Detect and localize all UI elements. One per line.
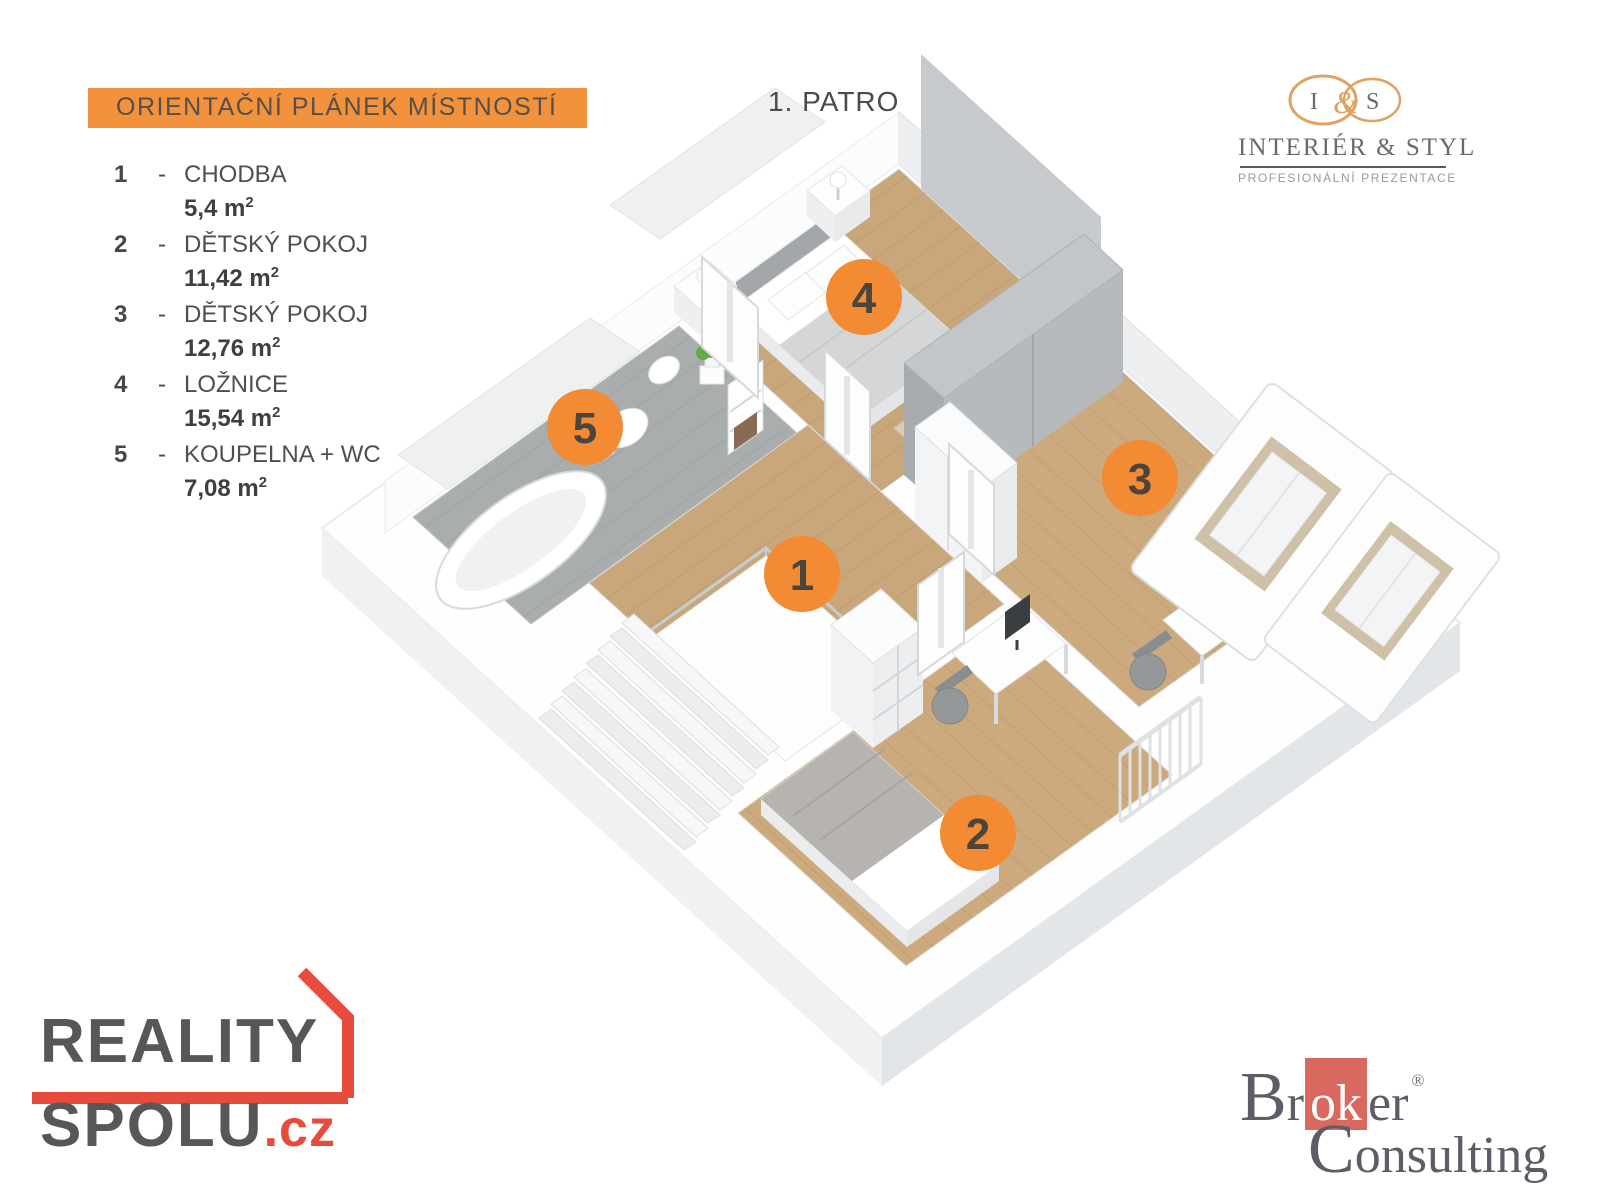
area-value: 11,42 m <box>184 265 271 292</box>
legend-row: 5-KOUPELNA + WC 7,08 m2 <box>88 440 648 503</box>
registered-mark: ® <box>1411 1071 1424 1090</box>
broker-br: Br <box>1240 1058 1304 1138</box>
room-area: 7,08 m2 <box>158 469 648 503</box>
room-number: 3 <box>114 300 158 329</box>
room-name: DĚTSKÝ POKOJ <box>184 300 648 329</box>
separator: - <box>158 230 184 259</box>
room-number: 5 <box>114 440 158 469</box>
area-sup: 2 <box>259 475 267 491</box>
room-name: KOUPELNA + WC <box>184 440 648 469</box>
infinity-monogram-icon: I & S <box>1238 66 1448 132</box>
reality-spolu-logo: REALITY SPOLU.cz <box>30 958 450 1193</box>
room-number: 2 <box>114 230 158 259</box>
badge-bedroom: 4 <box>826 259 902 335</box>
area-sup: 2 <box>271 265 279 281</box>
area-sup: 2 <box>272 405 280 421</box>
area-value: 12,76 m <box>184 335 272 362</box>
room-number: 4 <box>114 370 158 399</box>
legend: ORIENTAČNÍ PLÁNEK MÍSTNOSTÍ 1-CHODBA 5,4… <box>88 88 648 510</box>
badge-kidsroom3: 3 <box>1102 440 1178 516</box>
room-name: CHODBA <box>184 160 648 189</box>
lamp <box>830 172 846 188</box>
broker-consulting-logo: Broker® Consulting <box>1228 1036 1600 1186</box>
divider <box>1240 166 1446 168</box>
room-name: DĚTSKÝ POKOJ <box>184 230 648 259</box>
room-number: 1 <box>114 160 158 189</box>
badge-hall: 1 <box>764 536 840 612</box>
area-value: 5,4 m <box>184 195 245 222</box>
legend-row: 4-LOŽNICE 15,54 m2 <box>88 370 648 433</box>
room-name: LOŽNICE <box>184 370 648 399</box>
room-area: 12,76 m2 <box>158 329 648 363</box>
cz-tld: .cz <box>264 1100 336 1158</box>
separator: - <box>158 440 184 469</box>
spolu-word: SPOLU <box>40 1091 264 1160</box>
room-area: 15,54 m2 <box>158 399 648 433</box>
separator: - <box>158 160 184 189</box>
interier-styl-tagline: PROFESIONÁLNÍ PREZENTACE <box>1238 171 1448 185</box>
svg-text:4: 4 <box>852 274 877 323</box>
svg-text:2: 2 <box>966 810 990 859</box>
legend-row: 1-CHODBA 5,4 m2 <box>88 160 648 223</box>
interier-styl-name: INTERIÉR & STYL <box>1238 134 1448 162</box>
svg-text:1: 1 <box>790 551 814 600</box>
badge-kidsroom2: 2 <box>940 795 1016 871</box>
consulting-word: Consulting <box>1308 1110 1548 1190</box>
svg-text:&: & <box>1333 84 1358 120</box>
page: { "legend": { "title": "ORIENTAČNÍ PLÁNE… <box>0 0 1600 1200</box>
area-value: 15,54 m <box>184 405 272 432</box>
legend-row: 3-DĚTSKÝ POKOJ 12,76 m2 <box>88 300 648 363</box>
legend-row: 2-DĚTSKÝ POKOJ 11,42 m2 <box>88 230 648 293</box>
spolu-line: SPOLU.cz <box>40 1090 336 1161</box>
area-sup: 2 <box>245 195 253 211</box>
area-sup: 2 <box>272 335 280 351</box>
legend-title: ORIENTAČNÍ PLÁNEK MÍSTNOSTÍ <box>88 88 587 128</box>
room-area: 11,42 m2 <box>158 259 648 293</box>
consulting-text: Consulting <box>1308 1110 1548 1190</box>
area-value: 7,08 m <box>184 475 259 502</box>
svg-text:I: I <box>1310 89 1318 115</box>
svg-text:3: 3 <box>1128 455 1152 504</box>
separator: - <box>158 370 184 399</box>
interier-styl-logo: I & S INTERIÉR & STYL PROFESIONÁLNÍ PREZ… <box>1238 66 1448 185</box>
room-area: 5,4 m2 <box>158 189 648 223</box>
floor-title: 1. PATRO <box>768 86 899 118</box>
separator: - <box>158 300 184 329</box>
svg-text:S: S <box>1366 89 1379 115</box>
legend-rows: 1-CHODBA 5,4 m2 2-DĚTSKÝ POKOJ 11,42 m2 … <box>88 160 648 503</box>
reality-word: REALITY <box>40 1006 319 1077</box>
